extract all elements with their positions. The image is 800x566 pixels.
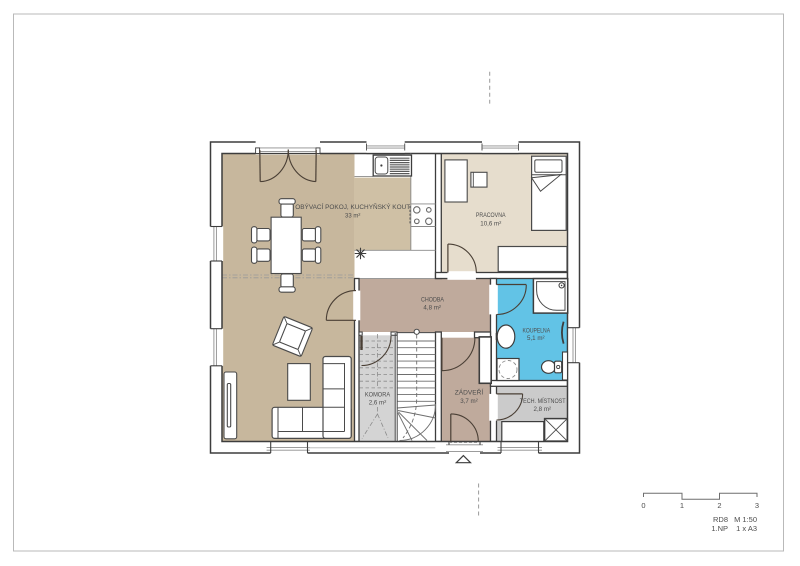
svg-text:TECH. MÍSTNOST: TECH. MÍSTNOST xyxy=(520,398,566,405)
svg-text:2,8 m²: 2,8 m² xyxy=(534,406,552,413)
svg-text:3,7 m²: 3,7 m² xyxy=(460,398,478,405)
svg-text:2,6 m²: 2,6 m² xyxy=(369,400,387,407)
svg-text:M 1:50: M 1:50 xyxy=(734,515,757,524)
svg-text:2: 2 xyxy=(717,501,721,510)
svg-text:ZÁDVEŘÍ: ZÁDVEŘÍ xyxy=(455,388,484,396)
svg-text:CHODBA: CHODBA xyxy=(421,296,445,303)
svg-text:4,8 m²: 4,8 m² xyxy=(423,305,441,312)
svg-text:1 x A3: 1 x A3 xyxy=(736,524,757,533)
svg-text:KOMORA: KOMORA xyxy=(365,391,391,398)
svg-text:33 m²: 33 m² xyxy=(345,214,360,220)
svg-text:OBÝVACÍ POKOJ, KUCHYŇSKÝ KOUT: OBÝVACÍ POKOJ, KUCHYŇSKÝ KOUT xyxy=(295,204,410,211)
svg-text:1: 1 xyxy=(680,501,684,510)
svg-text:10,6 m²: 10,6 m² xyxy=(480,221,501,228)
svg-text:RD8: RD8 xyxy=(713,515,728,524)
svg-text:1.NP: 1.NP xyxy=(711,524,728,533)
svg-text:5,1 m²: 5,1 m² xyxy=(527,335,545,342)
svg-text:PRACOVNA: PRACOVNA xyxy=(476,212,506,219)
svg-text:KOUPELNA: KOUPELNA xyxy=(523,327,551,334)
svg-text:0: 0 xyxy=(641,501,645,510)
svg-text:3: 3 xyxy=(755,501,759,510)
